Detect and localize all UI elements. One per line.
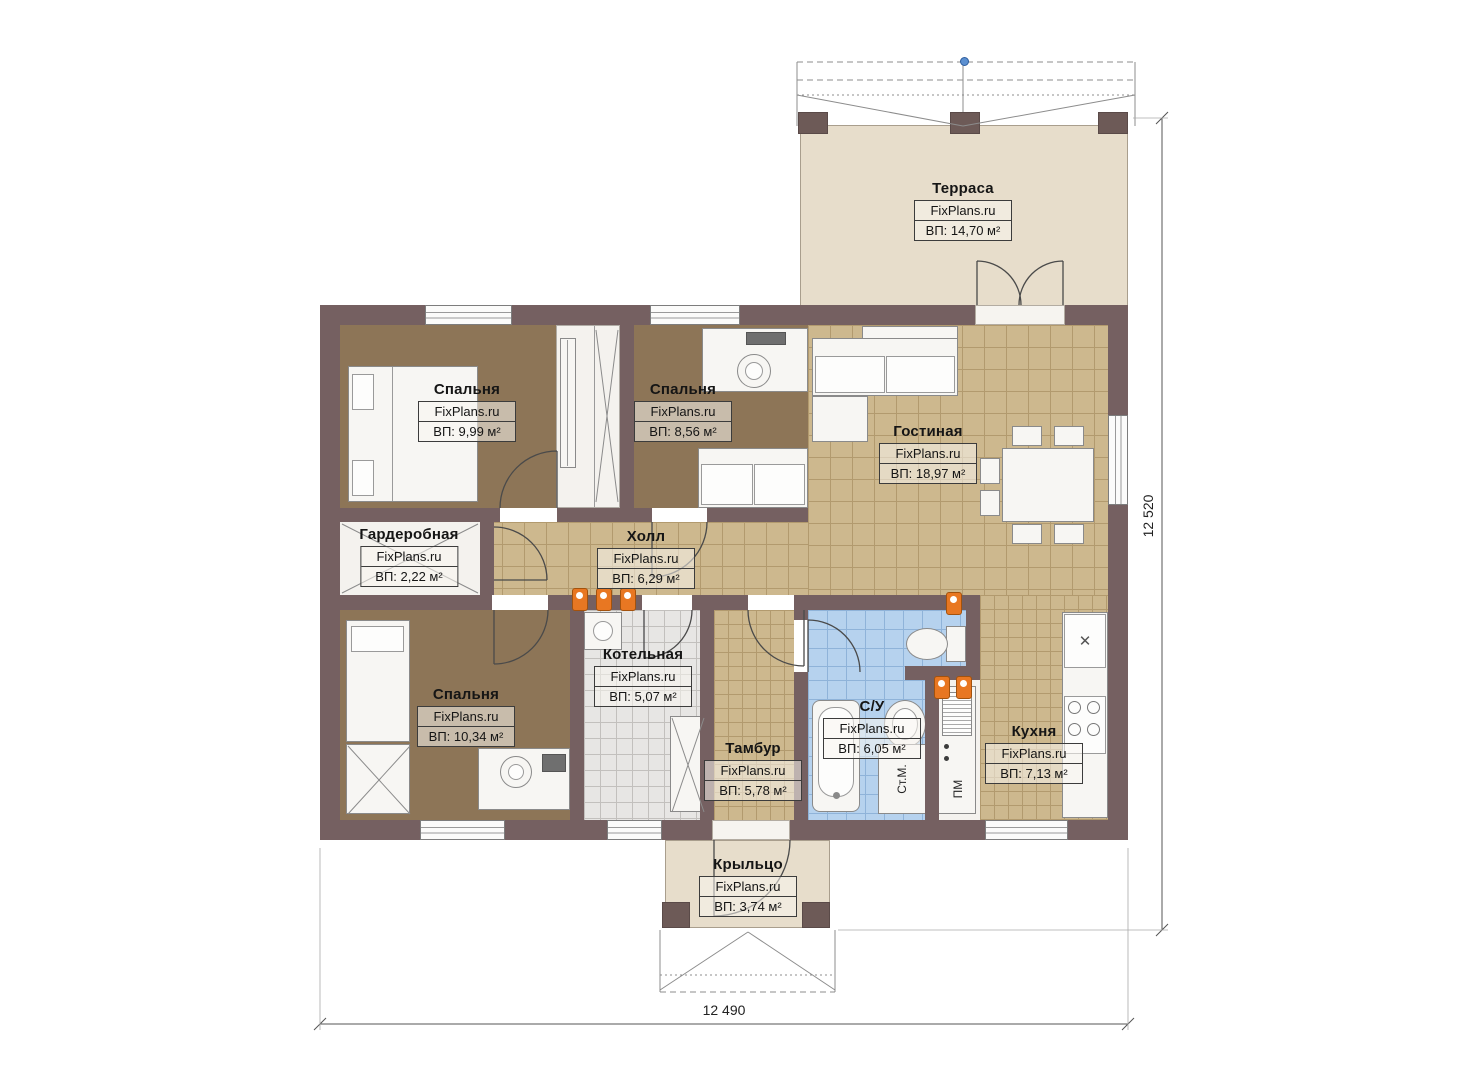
room-label-kitchen: Кухня FixPlans.ru ВП: 7,13 м² bbox=[985, 723, 1083, 784]
watermark: FixPlans.ru bbox=[418, 707, 514, 727]
pillow bbox=[352, 460, 374, 496]
kitchen-sink: ✕ bbox=[1064, 614, 1106, 668]
room-name: Терраса bbox=[914, 180, 1012, 197]
wall-interior bbox=[340, 595, 492, 610]
stove-burner bbox=[1087, 723, 1100, 736]
dining-chair bbox=[1012, 524, 1042, 544]
radiator bbox=[934, 676, 950, 699]
room-area: ВП: 6,05 м² bbox=[824, 739, 920, 758]
window bbox=[425, 305, 512, 325]
wall-interior bbox=[340, 508, 500, 522]
closet bbox=[670, 716, 704, 812]
radiator bbox=[620, 588, 636, 611]
bed-fold-line bbox=[392, 367, 393, 501]
room-label-bedroom-3: Спальня FixPlans.ru ВП: 10,34 м² bbox=[417, 686, 515, 747]
dining-chair bbox=[1012, 426, 1042, 446]
stove-burner bbox=[1068, 701, 1081, 714]
room-label-bathroom: С/У FixPlans.ru ВП: 6,05 м² bbox=[823, 698, 921, 759]
window bbox=[985, 820, 1068, 840]
window bbox=[607, 820, 662, 840]
room-area: ВП: 7,13 м² bbox=[986, 764, 1082, 783]
watermark: FixPlans.ru bbox=[705, 761, 801, 781]
sofa-chaise bbox=[812, 396, 868, 442]
sliding-wardrobe-door bbox=[560, 338, 576, 468]
sofa-cushion bbox=[886, 356, 955, 393]
room-name: Холл bbox=[597, 528, 695, 545]
wall-exterior-left bbox=[320, 305, 340, 840]
room-area: ВП: 5,78 м² bbox=[705, 781, 801, 800]
sliding-door-track bbox=[567, 340, 568, 466]
dimension-text-horizontal: 12 490 bbox=[689, 1002, 759, 1018]
room-area: ВП: 5,07 м² bbox=[595, 687, 691, 706]
watermark: FixPlans.ru bbox=[595, 667, 691, 687]
wall-exterior-right bbox=[1108, 305, 1128, 840]
dimension-text-vertical: 12 520 bbox=[1140, 480, 1156, 552]
room-area: ВП: 8,56 м² bbox=[635, 422, 731, 441]
sofa-cushion bbox=[815, 356, 885, 393]
dining-chair bbox=[1054, 426, 1084, 446]
roof-axis-marker bbox=[960, 57, 969, 66]
knob bbox=[944, 756, 949, 761]
dining-table bbox=[1002, 448, 1094, 522]
terrace-post bbox=[950, 112, 980, 134]
room-area: ВП: 6,29 м² bbox=[598, 569, 694, 588]
watermark: FixPlans.ru bbox=[700, 877, 796, 897]
room-label-bedroom-1: Спальня FixPlans.ru ВП: 9,99 м² bbox=[418, 381, 516, 442]
watermark: FixPlans.ru bbox=[361, 547, 457, 567]
terrace-door-threshold bbox=[975, 305, 1065, 325]
room-area: ВП: 3,74 м² bbox=[700, 897, 796, 916]
room-name: Кухня bbox=[985, 723, 1083, 740]
room-label-bedroom-2: Спальня FixPlans.ru ВП: 8,56 м² bbox=[634, 381, 732, 442]
room-label-vestibule: Тамбур FixPlans.ru ВП: 5,78 м² bbox=[704, 740, 802, 801]
wall-interior bbox=[966, 610, 980, 672]
room-name: Котельная bbox=[594, 646, 692, 663]
room-label-hall: Холл FixPlans.ru ВП: 6,29 м² bbox=[597, 528, 695, 589]
radiator bbox=[956, 676, 972, 699]
room-label-porch: Крыльцо FixPlans.ru ВП: 3,74 м² bbox=[699, 856, 797, 917]
dining-chair bbox=[980, 490, 1000, 516]
floor-plan-canvas: Ст.М. ПМ ✕ bbox=[0, 0, 1474, 1080]
watermark: FixPlans.ru bbox=[598, 549, 694, 569]
washing-machine-label: Ст.М. bbox=[895, 753, 909, 805]
sofa-cushion bbox=[701, 464, 753, 505]
watermark: FixPlans.ru bbox=[635, 402, 731, 422]
terrace-post bbox=[1098, 112, 1128, 134]
terrace-post bbox=[798, 112, 828, 134]
wall-interior bbox=[620, 325, 634, 508]
pillow bbox=[351, 626, 404, 652]
chair-seat bbox=[508, 764, 524, 780]
watermark: FixPlans.ru bbox=[419, 402, 515, 422]
wall-interior bbox=[707, 508, 808, 522]
stove-burner bbox=[1087, 701, 1100, 714]
window bbox=[420, 820, 505, 840]
printer bbox=[542, 754, 566, 772]
watermark: FixPlans.ru bbox=[915, 201, 1011, 221]
watermark: FixPlans.ru bbox=[880, 444, 976, 464]
room-name: Тамбур bbox=[704, 740, 802, 757]
bathtub-drain bbox=[833, 792, 840, 799]
room-floor-bathroom bbox=[808, 666, 905, 680]
wall-interior bbox=[692, 595, 748, 610]
room-name: Спальня bbox=[417, 686, 515, 703]
room-name: С/У bbox=[823, 698, 921, 715]
room-name: Крыльцо bbox=[699, 856, 797, 873]
room-label-boiler-room: Котельная FixPlans.ru ВП: 5,07 м² bbox=[594, 646, 692, 707]
watermark: FixPlans.ru bbox=[824, 719, 920, 739]
porch-post bbox=[662, 902, 690, 928]
knob bbox=[944, 744, 949, 749]
radiator bbox=[946, 592, 962, 615]
room-area: ВП: 9,99 м² bbox=[419, 422, 515, 441]
room-label-wardrobe: Гардеробная FixPlans.ru ВП: 2,22 м² bbox=[359, 526, 458, 587]
dining-chair bbox=[1054, 524, 1084, 544]
window bbox=[650, 305, 740, 325]
room-name: Спальня bbox=[634, 381, 732, 398]
room-name: Гардеробная bbox=[359, 526, 458, 543]
porch-post bbox=[802, 902, 830, 928]
room-name: Спальня bbox=[418, 381, 516, 398]
room-area: ВП: 14,70 м² bbox=[915, 221, 1011, 240]
pillow bbox=[352, 374, 374, 410]
dining-chair bbox=[980, 458, 1000, 484]
radiator bbox=[572, 588, 588, 611]
room-name: Гостиная bbox=[879, 423, 977, 440]
dishwasher-label: ПМ bbox=[951, 763, 965, 815]
closet bbox=[346, 744, 410, 814]
porch-roof-outline bbox=[660, 930, 835, 992]
wall-interior bbox=[557, 508, 652, 522]
entrance-door-threshold bbox=[712, 820, 790, 840]
wall-interior bbox=[794, 610, 808, 620]
sink-cross-icon: ✕ bbox=[1079, 632, 1092, 650]
chair-seat bbox=[745, 362, 763, 380]
monitor bbox=[746, 332, 786, 345]
watermark: FixPlans.ru bbox=[986, 744, 1082, 764]
wall-interior bbox=[480, 522, 494, 595]
toilet-tank bbox=[946, 626, 966, 662]
window bbox=[1108, 415, 1128, 505]
closet-divider bbox=[594, 326, 595, 507]
room-area: ВП: 10,34 м² bbox=[418, 727, 514, 746]
room-area: ВП: 18,97 м² bbox=[880, 464, 976, 483]
room-label-living-room: Гостиная FixPlans.ru ВП: 18,97 м² bbox=[879, 423, 977, 484]
sofa-cushion bbox=[754, 464, 805, 505]
wall-interior bbox=[570, 610, 584, 820]
radiator bbox=[596, 588, 612, 611]
room-label-terrace: Терраса FixPlans.ru ВП: 14,70 м² bbox=[914, 180, 1012, 241]
wall-interior bbox=[925, 680, 939, 820]
boiler-dial bbox=[593, 621, 613, 641]
toilet-bowl bbox=[906, 628, 948, 660]
room-area: ВП: 2,22 м² bbox=[361, 567, 457, 586]
